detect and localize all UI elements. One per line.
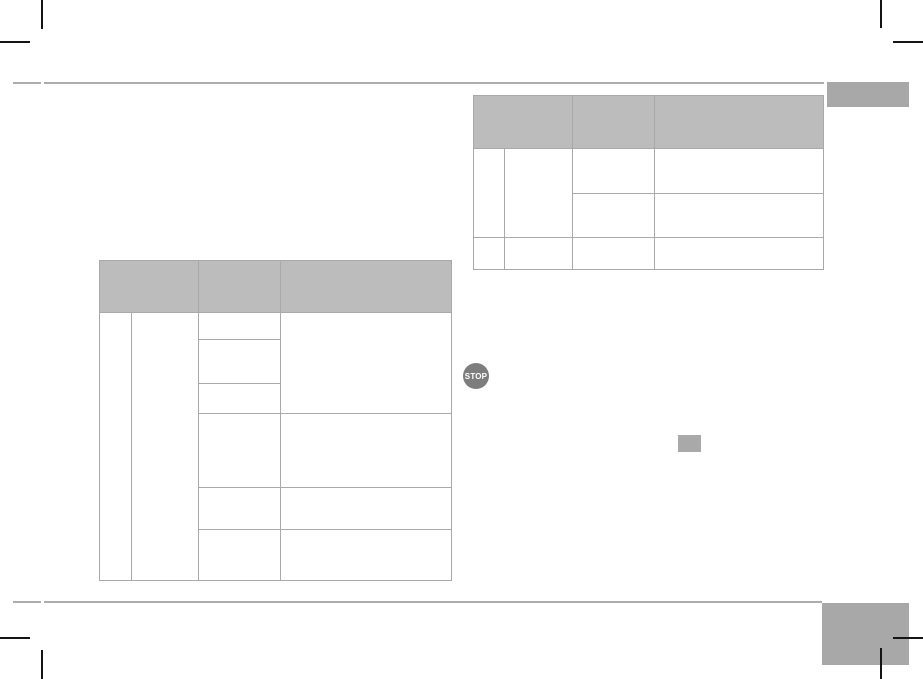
stop-icon-label: STOP [465,372,487,381]
table-cell [655,238,824,270]
crop-mark-top-right-vertical [880,0,882,28]
table-cell [573,194,655,238]
table-cell [573,238,655,270]
table-cell [100,313,132,581]
table-cell [199,530,281,581]
table-cell [281,488,452,530]
header-corner-tab [827,82,909,107]
table-cell [199,488,281,530]
crop-mark-bottom-left-vertical [41,650,43,679]
bottom-rule [44,601,822,603]
table-cell [281,313,452,414]
bottom-rule-tick [13,601,41,603]
crop-mark-bottom-left-horizontal [0,637,30,639]
top-rule-tick [13,82,41,84]
top-rule [44,82,824,84]
table-header-cell [199,261,281,313]
crop-mark-top-left-horizontal [0,41,30,43]
manual-page: STOP [0,0,923,679]
table-cell [505,238,573,270]
table-cell [474,149,505,238]
table-left [99,260,452,581]
table-cell [573,149,655,194]
table-cell [281,414,452,488]
table-top-right [473,95,824,270]
placeholder-box [678,435,701,452]
table-header-cell [573,96,655,149]
table-header-cell [281,261,452,313]
stop-icon: STOP [463,363,489,389]
crop-mark-top-right-horizontal [893,41,923,43]
table-cell [132,313,199,581]
table-cell [199,414,281,488]
table-cell [199,384,281,414]
table-header-cell [655,96,824,149]
table-header-cell [100,261,199,313]
crop-mark-top-left-vertical [41,0,43,29]
footer-corner-tab [822,603,909,665]
table-cell [199,340,281,384]
table-cell [474,238,505,270]
table-cell [505,149,573,238]
table-cell [655,149,824,194]
table-header-cell [474,96,573,149]
crop-mark-bottom-right-horizontal [893,637,923,639]
table-cell [655,194,824,238]
table-cell [281,530,452,581]
table-cell [199,313,281,340]
crop-mark-bottom-right-vertical [880,648,882,679]
